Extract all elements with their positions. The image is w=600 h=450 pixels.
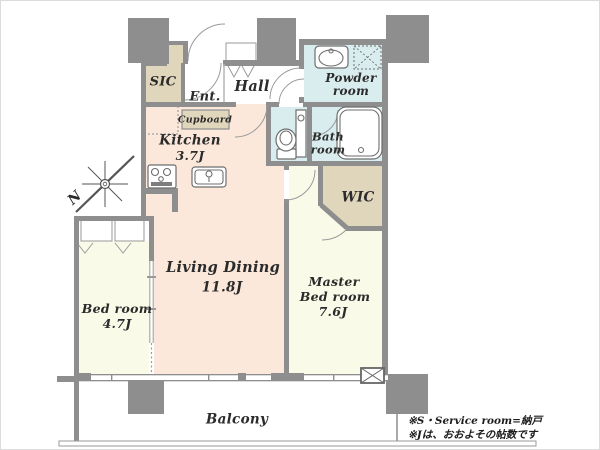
- pillar: [386, 15, 429, 63]
- room-label-hall: Hall: [234, 80, 269, 95]
- room-size-bedroom: 4.7J: [103, 318, 132, 331]
- room-label-powder-2: room: [333, 85, 369, 97]
- compass-icon: [76, 156, 134, 212]
- bedroom-closet-left: [81, 220, 112, 241]
- room-label-master-1: Master: [308, 276, 359, 289]
- floorplan: SIC Ent. Hall Cupboard Kitchen 3.7J Powd…: [0, 0, 600, 450]
- footnote-jo-count: ※Jは、おおよその帖数です: [408, 428, 537, 442]
- room-label-bath-2: room: [311, 144, 346, 156]
- closet-fold-mark: [228, 66, 240, 77]
- pillar: [257, 18, 296, 64]
- toilet-counter: [296, 110, 306, 157]
- room-label-master-2: Bed room: [300, 291, 371, 304]
- footnote-service-room: ※S・Service room=納戸: [408, 414, 542, 428]
- pipe-space: [361, 368, 384, 383]
- room-size-master: 7.6J: [319, 306, 348, 319]
- room-label-cupboard: Cupboard: [178, 115, 232, 125]
- windows: [75, 373, 388, 381]
- room-label-living: Living Dining: [166, 261, 280, 276]
- closet-fold-mark: [242, 66, 254, 77]
- floorplan-graphic: [1, 1, 600, 450]
- room-label-sic: SIC: [150, 76, 177, 89]
- entrance-door-arc: [188, 24, 225, 61]
- room-label-entrance: Ent.: [189, 91, 220, 104]
- room-label-kitchen: Kitchen: [159, 134, 221, 148]
- pillar: [386, 374, 428, 414]
- pillar: [128, 18, 169, 63]
- room-label-powder-1: Powder: [325, 72, 376, 84]
- sic-upper-floor: [168, 45, 184, 63]
- bedroom-closet-right: [115, 220, 144, 241]
- room-size-kitchen: 3.7J: [176, 150, 205, 163]
- grill: [151, 182, 172, 186]
- powder-door-arc: [270, 68, 301, 99]
- toilet-bowl: [276, 129, 296, 151]
- room-size-living: 11.8J: [202, 281, 243, 295]
- room-label-bedroom: Bed room: [82, 303, 153, 316]
- room-label-balcony: Balcony: [206, 413, 268, 427]
- room-label-bath-1: Bath: [312, 131, 344, 143]
- room-label-wic: WIC: [341, 191, 374, 205]
